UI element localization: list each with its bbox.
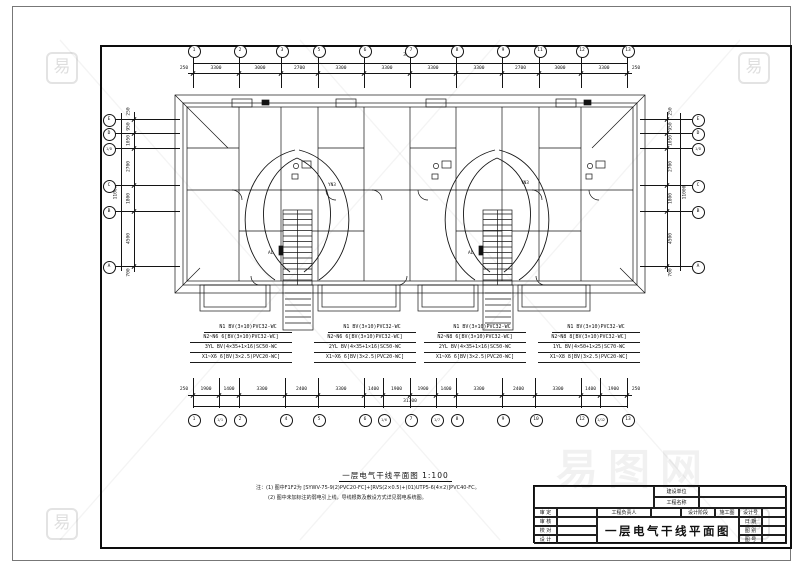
feeder-line: N2~N8 6[BV(3×10)PVC32-WC]	[424, 333, 526, 343]
project-lead-value	[651, 508, 681, 517]
dim-label: 3000	[542, 65, 578, 72]
grid-bubble: 6	[359, 414, 372, 427]
dim-extension-line	[121, 113, 122, 271]
grid-bubble: 8	[451, 45, 464, 58]
design-no-value	[762, 508, 787, 517]
dim-label: 3300	[415, 65, 451, 72]
grid-bubble: B	[692, 206, 705, 219]
dim-label: 2400	[501, 386, 537, 393]
sheet-no-value	[762, 535, 787, 544]
dim-label: 3300	[369, 65, 405, 72]
feeder-line: X1~X8 8[BV(3×2.5)PVC20-WC]	[538, 353, 640, 363]
dim-label: 3300	[323, 386, 359, 393]
dim-label: 1400	[428, 386, 464, 393]
dim-label: 3000	[242, 65, 278, 72]
feeder-line: 2YL BV(4×35+1×16)SC50-WC	[424, 343, 526, 353]
feeder-line: X1~X6 6[BV(3×2.5)PVC20-WC]	[424, 353, 526, 363]
drawing-caption: 一层电气干线平面图 1:100	[308, 470, 483, 481]
design-stage-label: 设计阶段	[681, 508, 715, 517]
approver-value	[557, 508, 597, 517]
grid-bubble: 13	[622, 45, 635, 58]
grid-bubble: 7	[405, 414, 418, 427]
grid-bubble: 1	[188, 45, 201, 58]
dim-label: 3300	[540, 386, 576, 393]
dim-label: 250	[126, 93, 133, 129]
checker-label: 审 核	[534, 517, 557, 526]
sheet-no-label: 图 号	[739, 535, 762, 544]
design-no-label: 设计号	[739, 508, 762, 517]
note-line-1: 注：(1) 图中F1F2为 [SYWV-75-9(2)PVC20-FC]+[RV…	[256, 484, 480, 493]
grid-bubble: 4	[280, 414, 293, 427]
dim-label: 11000	[682, 174, 689, 210]
feeder-line: N1 BV(3×10)PVC32-WC	[552, 323, 640, 333]
grid-bubble: 13	[622, 414, 635, 427]
dim-label: 4500	[126, 221, 133, 257]
project-lead-label: 工程负责人	[597, 508, 651, 517]
dim-label: 250	[618, 386, 654, 393]
grid-bubble: 12	[576, 45, 589, 58]
titleblock-blank-cell	[534, 486, 654, 508]
grid-bubble: 1/1	[214, 414, 227, 427]
grid-bubble: 1/D	[103, 143, 116, 156]
grid-bubble: 11	[534, 45, 547, 58]
dim-line	[114, 119, 180, 120]
grid-bubble: C	[103, 180, 116, 193]
dim-line	[114, 148, 180, 149]
grid-bubble: 1/6	[378, 414, 391, 427]
project-value	[699, 497, 787, 508]
feeder-line: N2~N6 6[BV(3×10)PVC32-WC]	[190, 333, 292, 343]
dim-label: 3300	[244, 386, 280, 393]
dim-line	[114, 266, 180, 267]
grid-bubble: C	[692, 180, 705, 193]
feeder-line: N2~N8 8[BV(3×10)PVC32-WC]	[538, 333, 640, 343]
designer-label: 设 计	[534, 535, 557, 544]
dim-label: 3300	[461, 386, 497, 393]
grid-bubble: 1/12	[595, 414, 608, 427]
grid-bubble: 12	[576, 414, 589, 427]
client-value	[699, 486, 787, 497]
designer-value	[557, 535, 597, 544]
grid-bubble: E	[692, 114, 705, 127]
dim-label: 2700	[126, 149, 133, 185]
approver-label: 审 定	[534, 508, 557, 517]
feeder-line: N2~N6 6[BV(3×10)PVC32-WC]	[314, 333, 416, 343]
dim-label: 2400	[284, 386, 320, 393]
design-stage-value: 施工图	[715, 508, 739, 517]
grid-bubble: E	[103, 114, 116, 127]
checker-value	[557, 517, 597, 526]
dim-label: 250	[166, 65, 202, 72]
note-line-2: (2) 图中未加标注的弱电引上线，导线根数及敷设方式详见弱电系统图。	[268, 494, 427, 503]
grid-bubble: 2	[234, 45, 247, 58]
grid-bubble: D	[692, 128, 705, 141]
titleblock-drawing-title: 一层电气干线平面图	[597, 517, 739, 544]
grid-bubble: 9	[497, 414, 510, 427]
grid-bubble: 1/D	[692, 143, 705, 156]
dim-label: 700	[126, 254, 133, 290]
proofreader-label: 校 对	[534, 526, 557, 535]
feeder-line: X1~X6 6[BV(3×2.5)PVC20-WC]	[314, 353, 416, 363]
dim-label: 2700	[282, 65, 318, 72]
dim-label: 4500	[668, 221, 675, 257]
grid-bubble: 9	[497, 45, 510, 58]
dim-label: 1400	[211, 386, 247, 393]
dim-label: 3300	[323, 65, 359, 72]
grid-bubble: B	[103, 206, 116, 219]
date-value	[762, 517, 787, 526]
project-label: 工程名称	[654, 497, 699, 508]
feeder-line: N1 BV(3×10)PVC32-WC	[328, 323, 416, 333]
dim-label: 2700	[503, 65, 539, 72]
dim-line	[114, 133, 180, 134]
grid-bubble: 6	[359, 45, 372, 58]
grid-bubble: A	[692, 261, 705, 274]
dim-label: 3300	[461, 65, 497, 72]
dim-label: 11000	[113, 174, 120, 210]
feeder-line: 1YL BV(4×50+1×25)SC70-WC	[538, 343, 640, 353]
caption-title: 一层电气干线平面图	[342, 471, 419, 480]
feeder-line: 2YL BV(4×35+1×16)SC50-WC	[314, 343, 416, 353]
proofreader-value	[557, 526, 597, 535]
date-label: 日 期	[739, 517, 762, 526]
category-value	[762, 526, 787, 535]
grid-bubble: 8	[451, 414, 464, 427]
dim-label: 2700	[668, 149, 675, 185]
grid-bubble: 1	[188, 414, 201, 427]
dim-label: 700	[668, 254, 675, 290]
dim-line	[114, 211, 180, 212]
grid-bubble: 3	[276, 45, 289, 58]
client-label: 建设单位	[654, 486, 699, 497]
dim-label: 3300	[198, 65, 234, 72]
grid-bubble: D	[103, 128, 116, 141]
dim-label: 250	[618, 65, 654, 72]
dim-extension-line	[134, 112, 135, 272]
drawing-sheet: 易 易 易 易 易图网	[0, 0, 800, 567]
dim-line	[114, 185, 180, 186]
grid-bubble: 10	[530, 414, 543, 427]
feeder-line: N1 BV(3×10)PVC32-WC	[438, 323, 526, 333]
dim-label: 250	[668, 93, 675, 129]
feeder-line: 3YL BV(4×35+1×16)SC50-WC	[190, 343, 292, 353]
caption-scale: 1:100	[422, 471, 449, 480]
title-block: 建设单位 工程名称 审 定 审 核 校 对 设 计 工程负责人 设计阶段 施工图…	[533, 485, 786, 543]
category-label: 图 别	[739, 526, 762, 535]
grid-bubble: 5	[313, 45, 326, 58]
grid-bubble: 1/7	[431, 414, 444, 427]
feeder-line: X1~X6 6[BV(3×2.5)PVC20-WC]	[190, 353, 292, 363]
grid-bubble: 5	[313, 414, 326, 427]
grid-bubble: 2	[234, 414, 247, 427]
grid-bubble: A	[103, 261, 116, 274]
feeder-line: N1 BV(3×10)PVC32-WC	[204, 323, 292, 333]
grid-bubble: 7	[405, 45, 418, 58]
dim-label: 3300	[586, 65, 622, 72]
dim-label: 250	[166, 386, 202, 393]
